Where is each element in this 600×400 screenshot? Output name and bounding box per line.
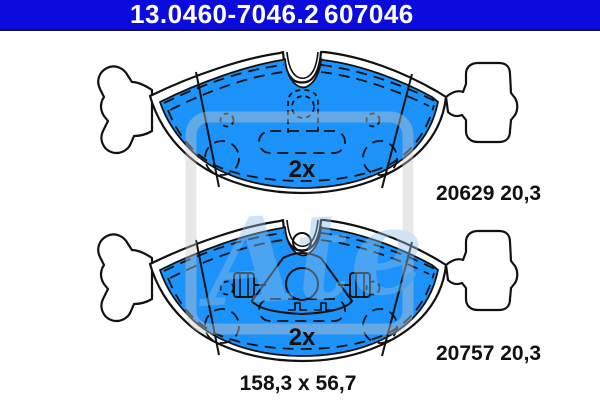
watermark-script: Ate <box>191 180 429 335</box>
dimensions-label: 158,3 x 56,7 <box>240 372 357 395</box>
pad-top-ref-label: 20629 20,3 <box>436 182 541 205</box>
pad-bottom-ref-label: 20757 20,3 <box>436 342 541 365</box>
pad-top-quantity-label: 2x <box>289 156 316 183</box>
technical-drawing: Ate 2x 2x 20629 20,3 20757 20,3 158,3 x … <box>0 0 600 400</box>
brake-pad-diagram-page: 13.0460-7046.2 607046 <box>0 0 600 400</box>
pad-bottom-quantity-label: 2x <box>289 324 316 351</box>
